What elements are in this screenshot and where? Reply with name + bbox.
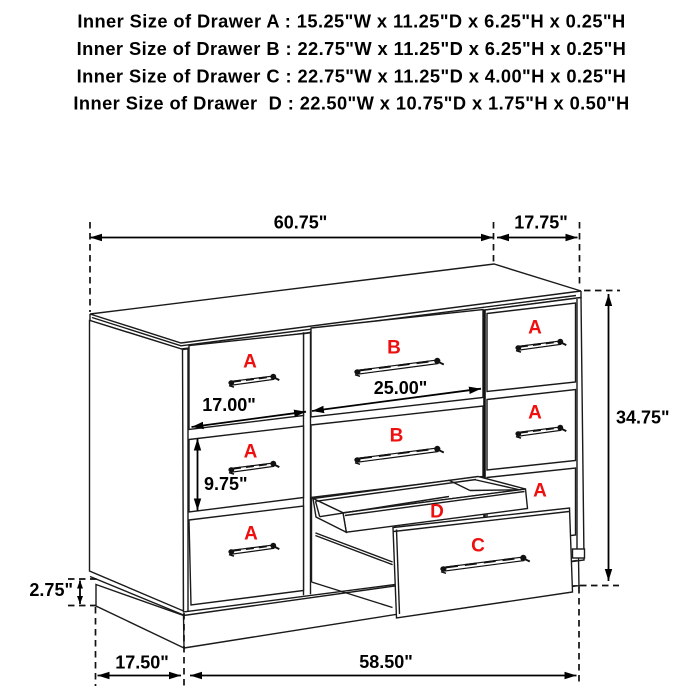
svg-text:60.75": 60.75"	[274, 213, 328, 233]
svg-text:D: D	[430, 502, 444, 523]
svg-text:A: A	[528, 317, 542, 338]
svg-text:A: A	[243, 351, 257, 372]
svg-text:25.00": 25.00"	[374, 378, 428, 398]
svg-text:2.75": 2.75"	[29, 580, 73, 600]
svg-text:34.75": 34.75"	[616, 408, 670, 428]
svg-text:Inner Size of Drawer B : 22.75: Inner Size of Drawer B : 22.75"W x 11.25…	[77, 38, 627, 59]
svg-text:17.00": 17.00"	[202, 395, 256, 415]
svg-text:A: A	[244, 523, 258, 544]
svg-text:58.50": 58.50"	[359, 652, 413, 672]
svg-text:17.50": 17.50"	[115, 653, 169, 673]
svg-text:B: B	[387, 337, 401, 358]
svg-text:Inner Size of Drawer D : 22.5: Inner Size of Drawer D : 22.50"W x 10.75…	[73, 93, 629, 114]
svg-text:9.75": 9.75"	[204, 474, 248, 494]
svg-text:A: A	[528, 402, 542, 423]
svg-text:B: B	[390, 425, 404, 446]
svg-text:17.75": 17.75"	[514, 213, 568, 233]
svg-text:A: A	[533, 480, 547, 501]
svg-text:Inner Size of Drawer A : 15.25: Inner Size of Drawer A : 15.25"W x 11.25…	[77, 11, 625, 32]
svg-text:Inner Size of Drawer C : 22.75: Inner Size of Drawer C : 22.75"W x 11.25…	[77, 65, 627, 86]
svg-text:C: C	[471, 535, 485, 556]
svg-text:A: A	[244, 441, 258, 462]
